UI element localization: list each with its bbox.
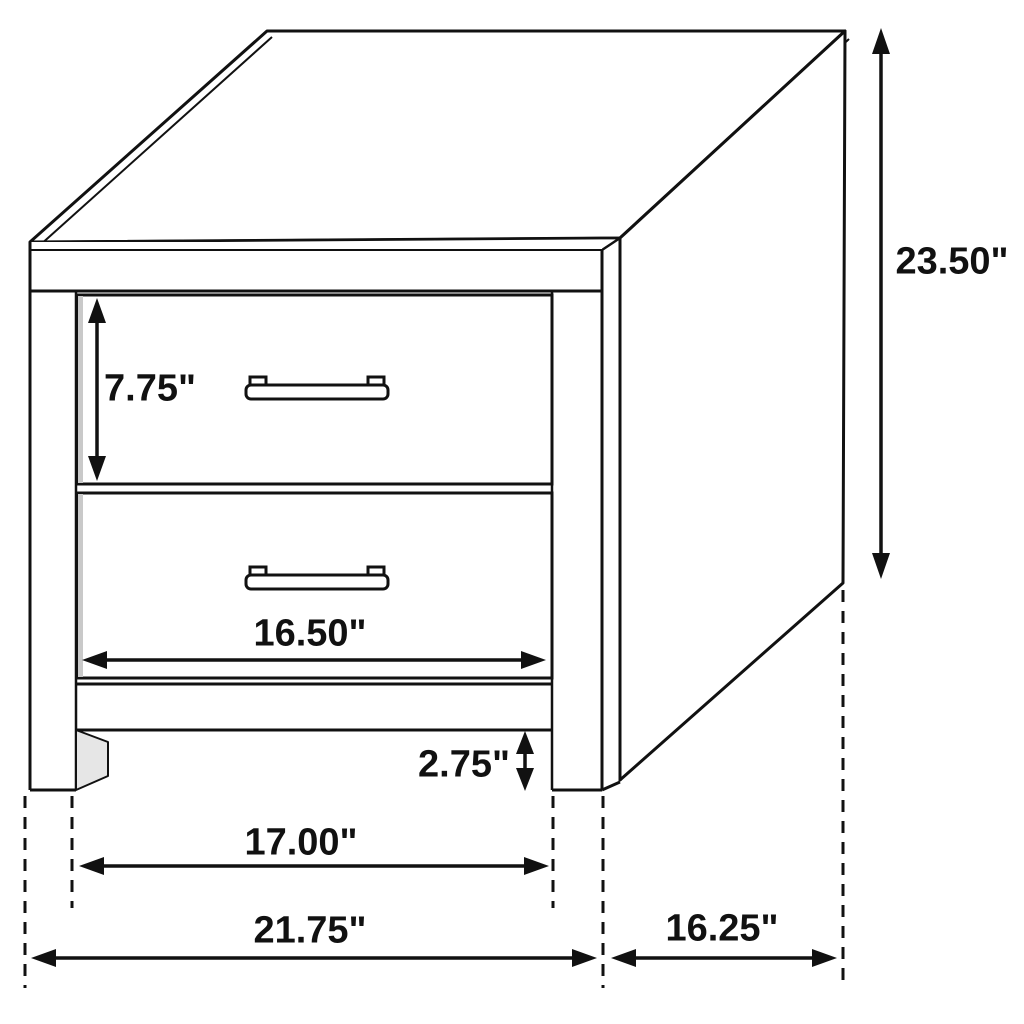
dim-label-drawer-width: 16.50" bbox=[253, 613, 366, 656]
dim-arrow-overall-depth bbox=[611, 949, 837, 967]
dim-label-overall-height: 23.50" bbox=[895, 241, 1008, 284]
drawer-1-handle-bar bbox=[246, 385, 388, 399]
diagram-canvas: 7.75" 23.50" 16.50" 2.75" 17.00" 21.75" … bbox=[0, 0, 1024, 1024]
dim-label-base-clearance: 2.75" bbox=[418, 744, 510, 787]
corner-post-bottom-edge bbox=[602, 782, 620, 790]
dim-label-drawer-height: 7.75" bbox=[104, 368, 196, 411]
nightstand-line-art bbox=[0, 0, 1024, 1024]
drawer-2-handle-bar bbox=[246, 575, 388, 589]
dim-label-overall-depth: 16.25" bbox=[665, 908, 778, 951]
dim-label-overall-width: 21.75" bbox=[253, 910, 366, 953]
drawer-2-gap-shadow bbox=[78, 494, 83, 677]
drawer-1-gap-shadow bbox=[78, 296, 83, 483]
dim-arrow-overall-height bbox=[872, 28, 890, 579]
dim-label-leg-span: 17.00" bbox=[244, 822, 357, 865]
